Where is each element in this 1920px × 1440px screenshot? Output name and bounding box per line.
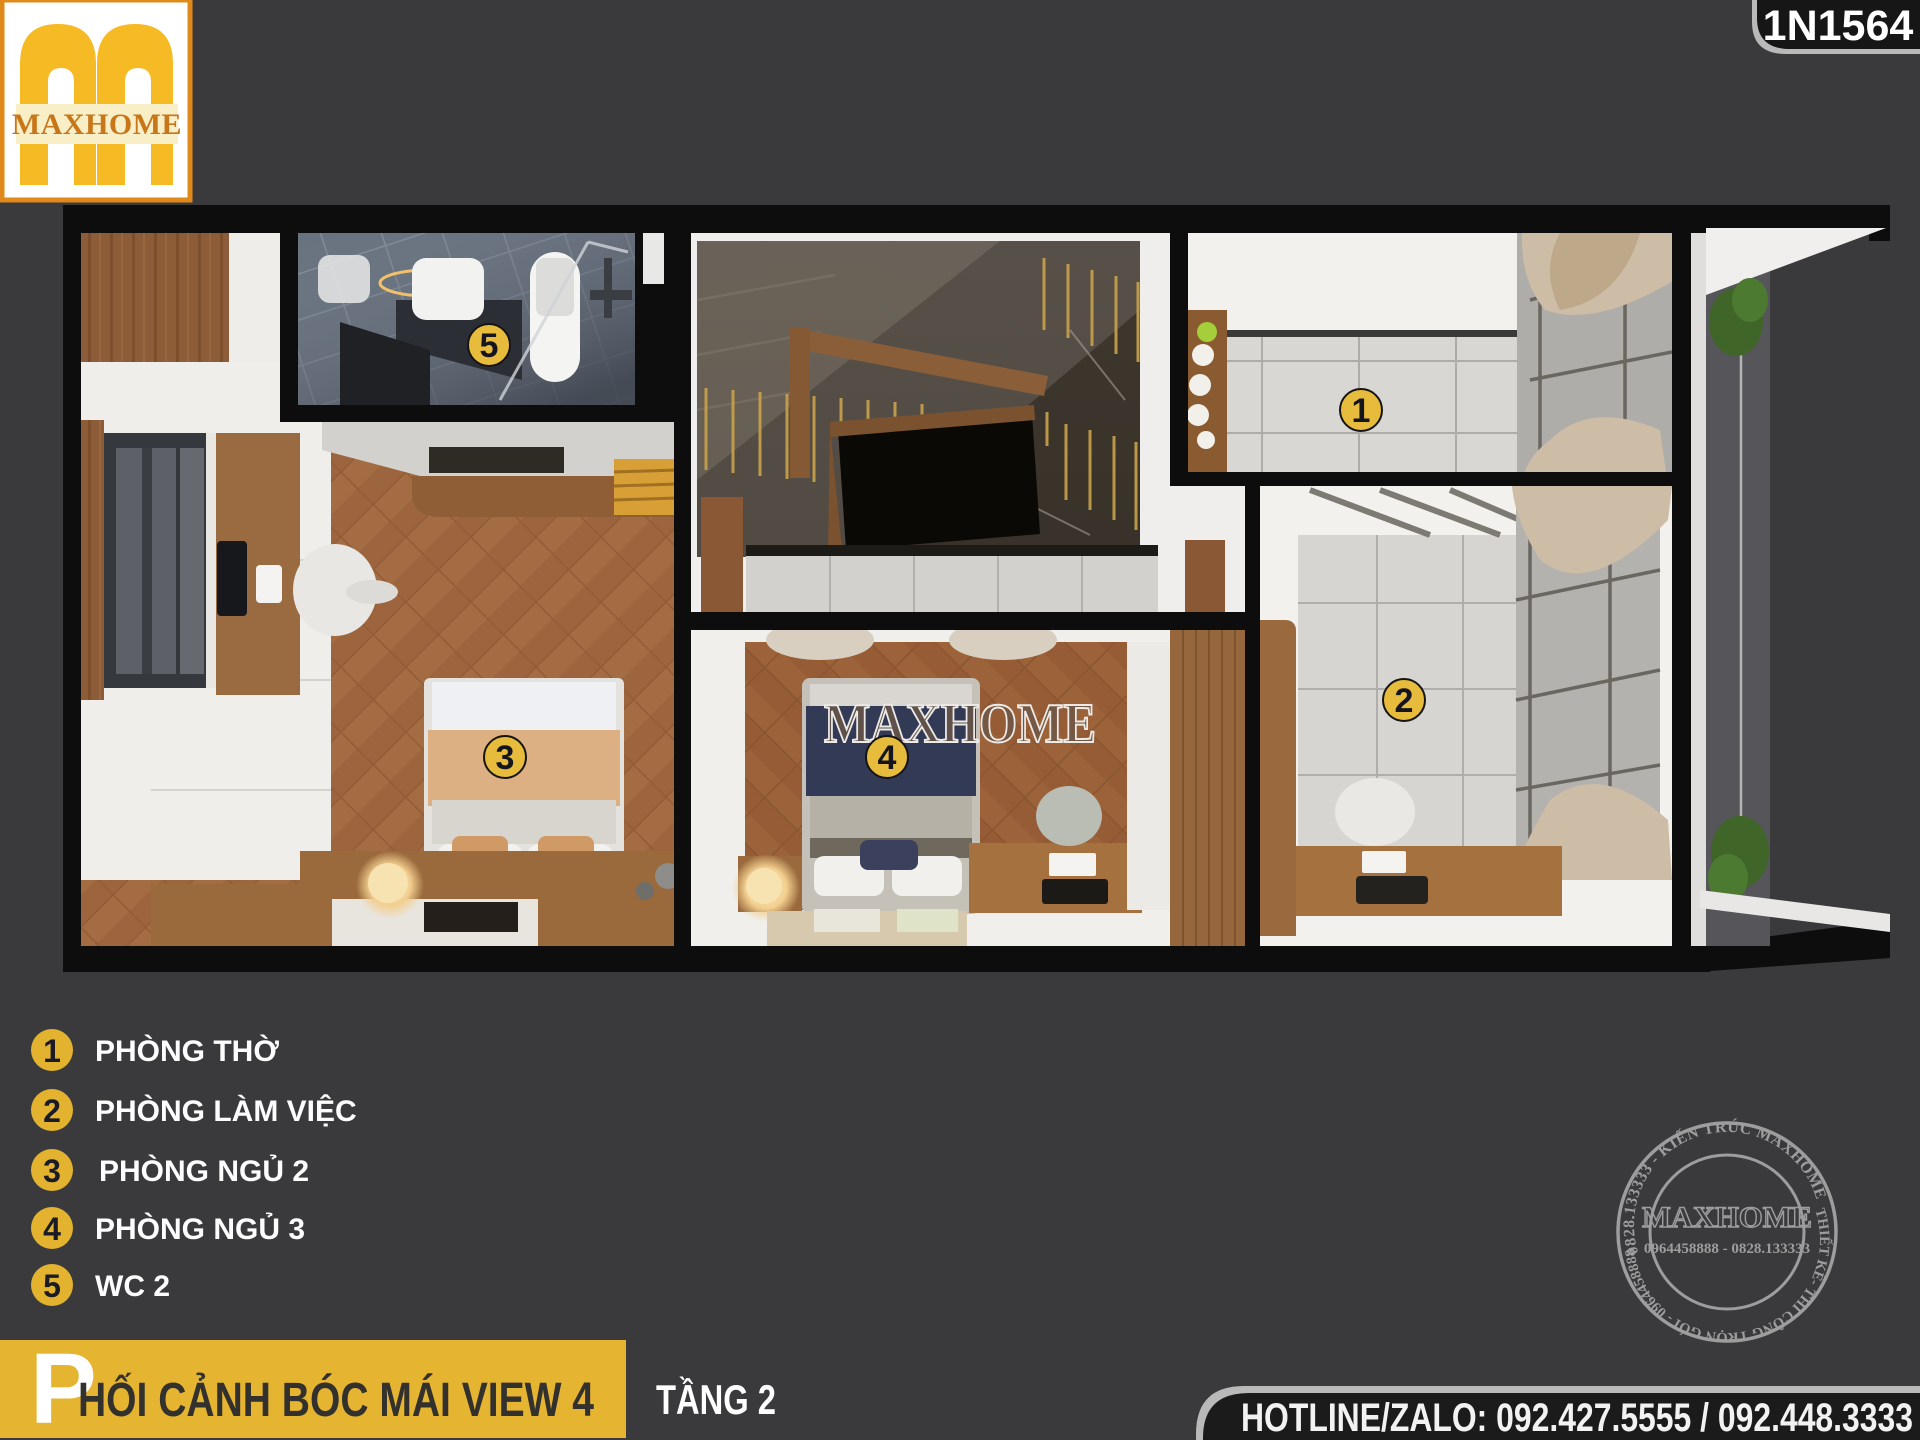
svg-text:PHÒNG NGỦ 2: PHÒNG NGỦ 2 [99, 1154, 309, 1188]
svg-text:PHÒNG THỜ: PHÒNG THỜ [95, 1034, 279, 1068]
svg-text:1: 1 [1352, 392, 1371, 430]
svg-text:HỐI CẢNH BÓC MÁI VIEW 4: HỐI CẢNH BÓC MÁI VIEW 4 [78, 1372, 594, 1427]
svg-text:0964458888 - 0828.133333: 0964458888 - 0828.133333 [1644, 1241, 1810, 1257]
svg-text:1: 1 [43, 1033, 61, 1069]
svg-text:4: 4 [43, 1211, 61, 1247]
svg-text:MAXHOME: MAXHOME [824, 693, 1096, 755]
svg-text:TẦNG 2: TẦNG 2 [656, 1376, 776, 1423]
svg-text:HOTLINE/ZALO: 092.427.5555 / 0: HOTLINE/ZALO: 092.427.5555 / 092.448.333… [1241, 1396, 1913, 1440]
svg-text:2: 2 [1395, 682, 1414, 720]
svg-text:2: 2 [43, 1093, 61, 1129]
svg-text:PHÒNG LÀM VIỆC: PHÒNG LÀM VIỆC [95, 1094, 357, 1128]
svg-text:MAXHOME: MAXHOME [1642, 1201, 1812, 1234]
svg-text:PHÒNG NGỦ 3: PHÒNG NGỦ 3 [95, 1212, 305, 1246]
svg-text:5: 5 [43, 1268, 61, 1304]
svg-text:3: 3 [496, 739, 515, 777]
svg-text:1N1564: 1N1564 [1763, 2, 1914, 50]
svg-text:4: 4 [878, 739, 897, 777]
svg-text:WC 2: WC 2 [95, 1270, 170, 1303]
svg-text:5: 5 [480, 327, 499, 365]
svg-text:3: 3 [43, 1153, 61, 1189]
svg-text:MAXHOME: MAXHOME [12, 108, 182, 141]
